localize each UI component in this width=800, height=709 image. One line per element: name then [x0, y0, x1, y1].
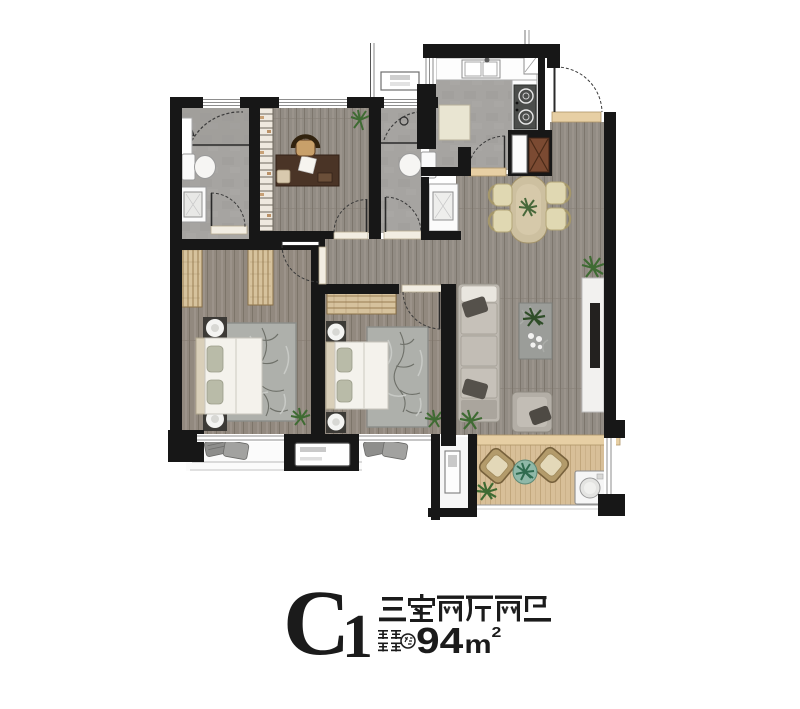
svg-text:94: 94 [416, 621, 463, 661]
svg-text:m: m [464, 630, 491, 659]
svg-text:1: 1 [342, 603, 373, 671]
svg-text:C: C [283, 572, 350, 675]
svg-text:2: 2 [492, 624, 502, 640]
